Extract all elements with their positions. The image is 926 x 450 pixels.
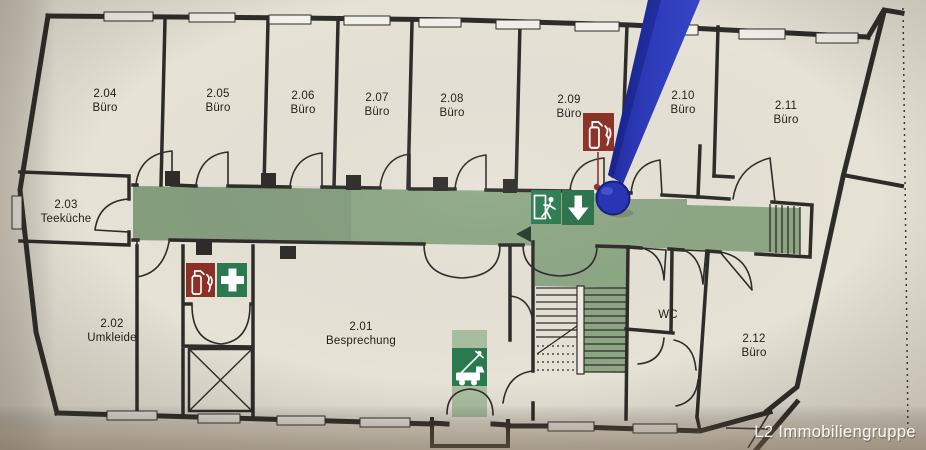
watermark-text: L2 Immobiliengruppe (754, 423, 916, 441)
photo-lighting (0, 0, 926, 450)
floor-plan: 2.04 Büro 2.05 Büro 2.06 Büro 2.07 Büro … (0, 0, 926, 450)
floor-plan-photo: 2.04 Büro 2.05 Büro 2.06 Büro 2.07 Büro … (0, 0, 926, 450)
watermark: L2 Immobiliengruppe L2 Immobiliengruppe (754, 423, 917, 443)
